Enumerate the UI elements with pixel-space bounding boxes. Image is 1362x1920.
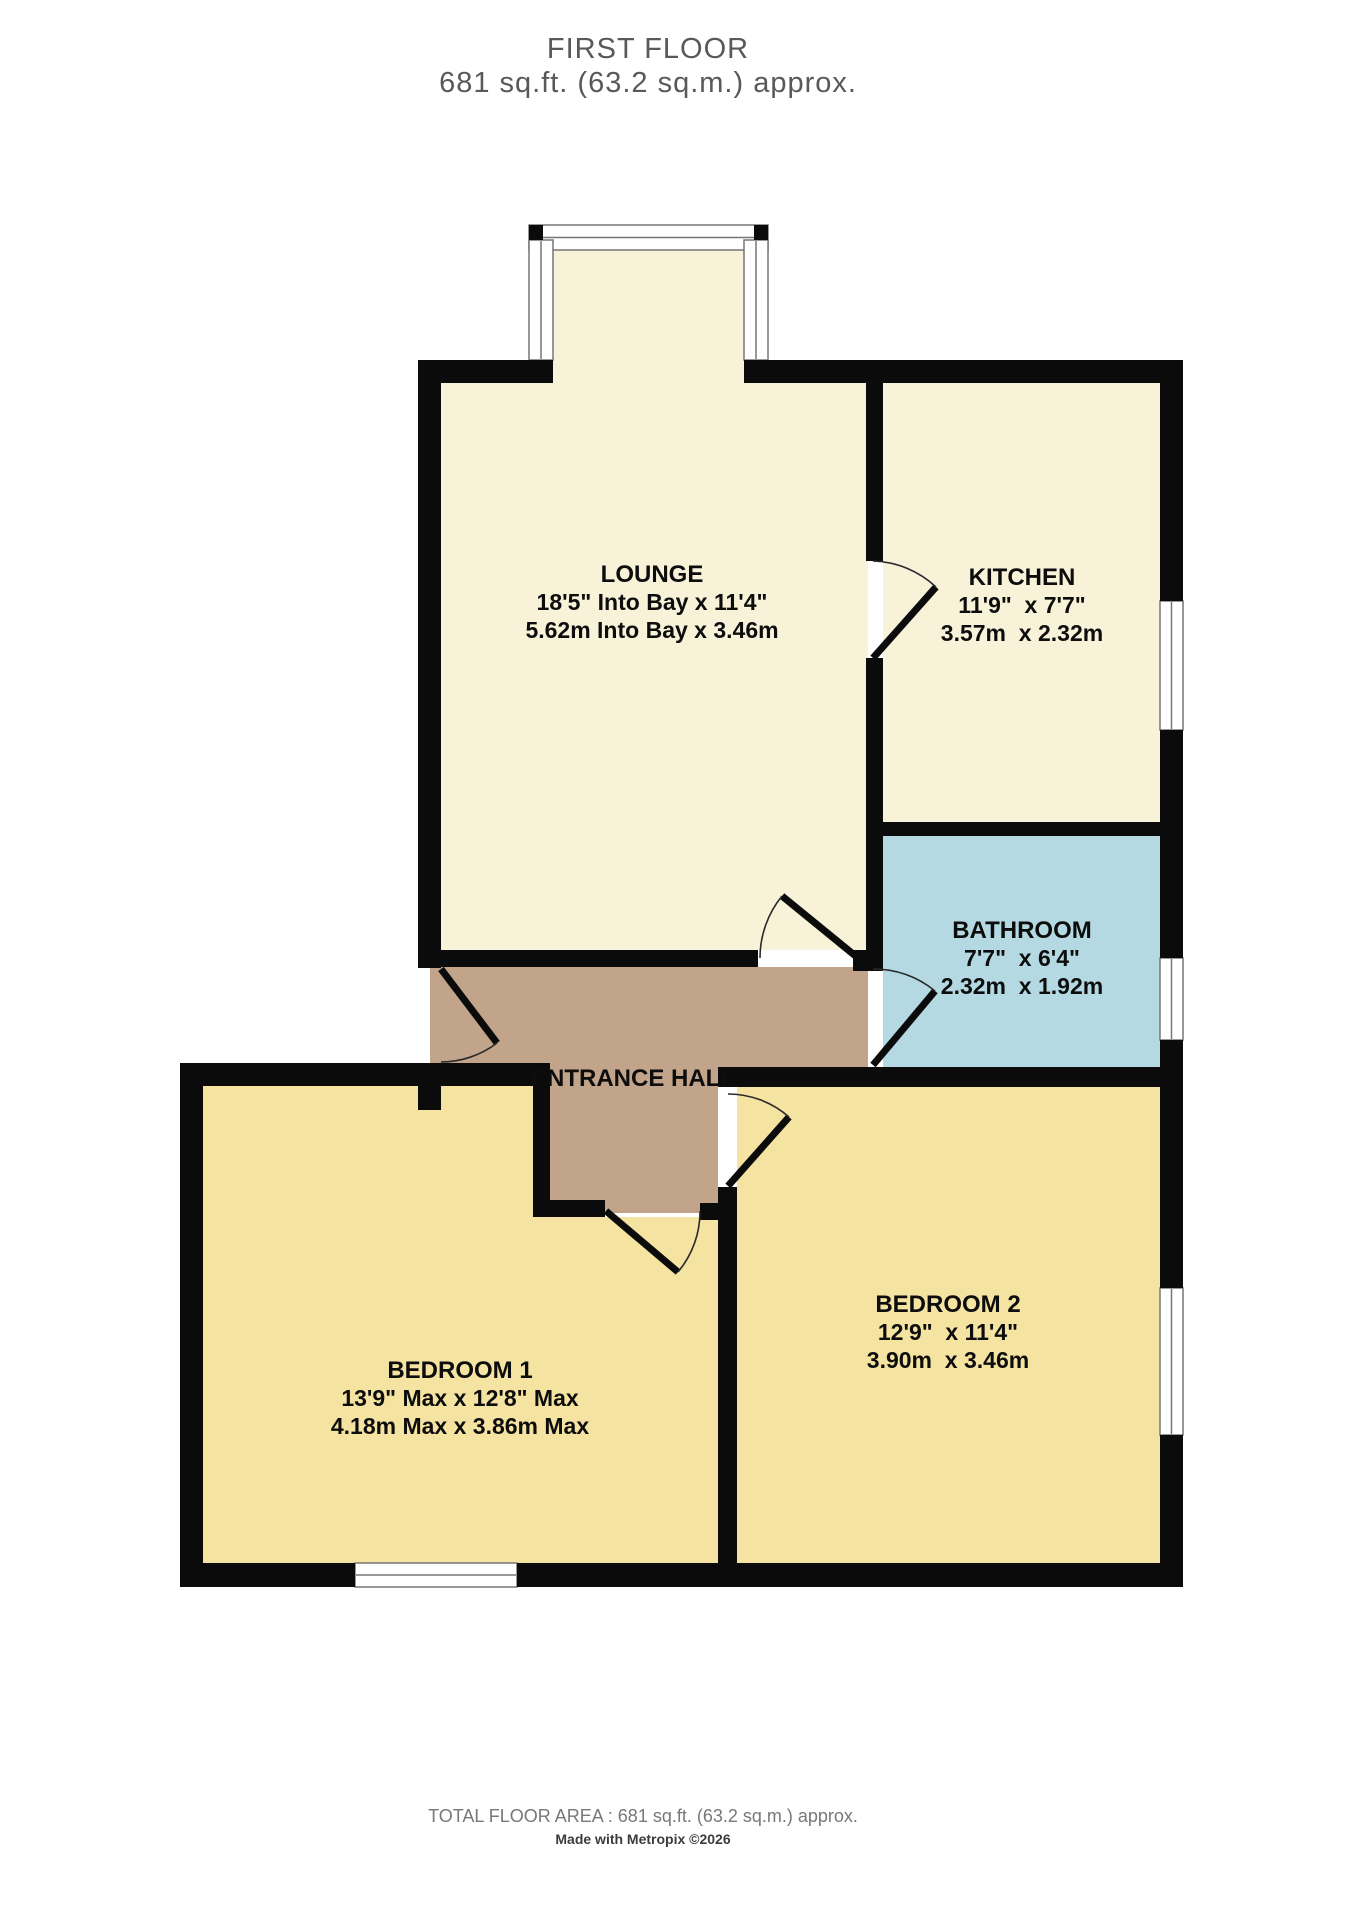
bedroom2-window [1160,1288,1183,1435]
svg-text:LOUNGE: LOUNGE [601,561,704,588]
bathroom-label: BATHROOM 7'7" x 6'4" 2.32m x 1.92m [941,917,1103,999]
svg-text:13'9" Max x 12'8" Max: 13'9" Max x 12'8" Max [341,1385,579,1411]
bedroom2-label: BEDROOM 2 12'9" x 11'4" 3.90m x 3.46m [867,1291,1029,1373]
svg-text:3.57m x 2.32m: 3.57m x 2.32m [941,620,1103,646]
svg-text:KITCHEN: KITCHEN [969,564,1076,591]
bay-corner-right [754,225,768,240]
svg-text:BEDROOM 1: BEDROOM 1 [387,1357,532,1384]
hall-floor [430,967,868,1067]
bay-window-top [529,225,768,250]
kitchen-window [1160,601,1183,730]
page-title: FIRST FLOOR [547,33,749,65]
svg-text:3.90m x 3.46m: 3.90m x 3.46m [867,1347,1029,1373]
svg-text:18'5" Into Bay x 11'4": 18'5" Into Bay x 11'4" [537,589,768,615]
svg-text:ENTRANCE HALL: ENTRANCE HALL [531,1065,735,1092]
floorplan-drawing: FIRST FLOOR 681 sq.ft. (63.2 sq.m.) appr… [0,0,1362,1920]
page-subtitle: 681 sq.ft. (63.2 sq.m.) approx. [439,67,857,99]
svg-text:12'9" x 11'4": 12'9" x 11'4" [878,1319,1018,1345]
bedroom1-window [355,1563,517,1587]
bay-window-left [529,240,553,360]
svg-text:2.32m x 1.92m: 2.32m x 1.92m [941,973,1103,999]
svg-text:5.62m Into Bay x 3.46m: 5.62m Into Bay x 3.46m [525,617,778,643]
bathroom-window [1160,958,1183,1040]
floorplan-page: FIRST FLOOR 681 sq.ft. (63.2 sq.m.) appr… [0,0,1362,1920]
svg-text:BEDROOM 2: BEDROOM 2 [875,1291,1020,1318]
svg-text:7'7" x 6'4": 7'7" x 6'4" [964,945,1080,971]
bay-window-right [744,240,768,360]
total-floor-area: TOTAL FLOOR AREA : 681 sq.ft. (63.2 sq.m… [428,1806,858,1826]
entrance-hall-label: ENTRANCE HALL [531,1065,735,1092]
svg-text:BATHROOM: BATHROOM [952,917,1092,944]
svg-text:11'9" x 7'7": 11'9" x 7'7" [958,592,1085,618]
metropix-credit: Made with Metropix ©2026 [555,1831,730,1847]
bay-corner-left [529,225,543,240]
svg-text:4.18m Max x 3.86m Max: 4.18m Max x 3.86m Max [331,1413,589,1439]
